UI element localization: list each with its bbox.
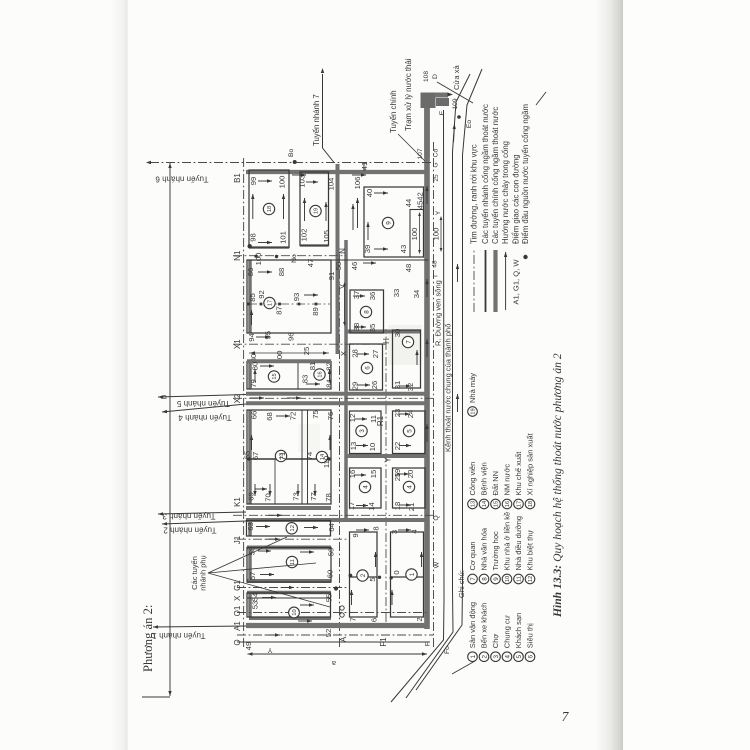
svg-text:Công viên: Công viên	[468, 462, 477, 496]
svg-text:10: 10	[505, 576, 511, 582]
svg-text:Xí nghiệp sản xuất: Xí nghiệp sản xuất	[526, 432, 535, 495]
svg-text:11: 11	[517, 576, 523, 582]
svg-text:34: 34	[412, 289, 421, 298]
svg-text:3: 3	[390, 530, 399, 534]
svg-text:79: 79	[249, 379, 258, 388]
svg-text:No: No	[291, 254, 298, 263]
svg-text:Bo: Bo	[288, 148, 295, 157]
svg-text:Tim đường, ranh rới khu vực: Tim đường, ranh rới khu vực	[470, 144, 479, 244]
svg-text:18: 18	[393, 502, 402, 511]
svg-text:17: 17	[347, 502, 356, 511]
svg-text:22: 22	[393, 442, 402, 451]
svg-text:15: 15	[494, 501, 500, 507]
svg-text:31: 31	[393, 381, 402, 390]
svg-text:103: 103	[298, 175, 307, 188]
svg-text:94: 94	[247, 333, 256, 342]
svg-text:25: 25	[302, 347, 311, 356]
svg-text:84: 84	[325, 379, 334, 388]
svg-text:Trạm xử lý nước thải: Trạm xử lý nước thải	[404, 58, 413, 131]
svg-text:106: 106	[353, 177, 362, 190]
svg-text:78: 78	[324, 493, 333, 502]
svg-text:Ghi chú:: Ghi chú:	[457, 570, 466, 598]
svg-text:Chợ: Chợ	[491, 634, 500, 649]
svg-text:14: 14	[482, 501, 488, 507]
svg-text:67: 67	[251, 452, 260, 461]
svg-text:96: 96	[287, 332, 296, 341]
svg-text:8: 8	[363, 310, 370, 314]
svg-text:15: 15	[272, 373, 278, 379]
svg-text:A1: A1	[233, 621, 242, 631]
svg-text:28: 28	[351, 349, 360, 358]
svg-text:88: 88	[277, 268, 286, 277]
svg-text:100: 100	[432, 228, 441, 241]
svg-text:49: 49	[244, 642, 253, 651]
svg-text:N: N	[338, 248, 347, 254]
svg-text:95: 95	[264, 331, 273, 340]
svg-text:12: 12	[528, 576, 534, 582]
svg-text:70: 70	[264, 493, 273, 502]
svg-text:19: 19	[471, 408, 477, 414]
svg-text:Khu biệt thự: Khu biệt thự	[526, 530, 535, 571]
svg-text:a: a	[331, 659, 336, 668]
svg-text:N1: N1	[233, 250, 242, 261]
svg-text:71: 71	[278, 452, 287, 461]
svg-text:Đất NN: Đất NN	[491, 471, 500, 496]
svg-text:85: 85	[248, 293, 257, 302]
svg-text:Sân vận động: Sân vận động	[468, 602, 477, 648]
svg-text:107: 107	[417, 148, 424, 159]
svg-text:Các tuyến chính cống ngầm thoá: Các tuyến chính cống ngầm thoát nước	[491, 107, 500, 244]
svg-text:8: 8	[372, 526, 381, 530]
svg-text:46: 46	[350, 262, 359, 271]
svg-text:86: 86	[246, 268, 255, 277]
svg-text:27: 27	[371, 350, 380, 359]
svg-text:O: O	[233, 639, 242, 645]
svg-text:74: 74	[305, 451, 314, 460]
svg-text:42: 42	[416, 192, 425, 201]
svg-text:Y: Y	[384, 457, 393, 463]
svg-text:Hướng nước chảy trong cống: Hướng nước chảy trong cống	[501, 141, 510, 244]
svg-text:4: 4	[504, 654, 511, 658]
svg-text:8: 8	[481, 577, 488, 581]
svg-text:X: X	[233, 595, 242, 601]
svg-text:nhánh phụ: nhánh phụ	[199, 555, 208, 590]
svg-text:Co: Co	[433, 148, 440, 157]
svg-text:18: 18	[528, 501, 534, 507]
svg-text:Fo: Fo	[444, 646, 451, 654]
svg-text:W: W	[434, 561, 441, 568]
svg-text:NM nước: NM nước	[503, 464, 512, 496]
svg-text:25: 25	[433, 174, 440, 182]
svg-text:F: F	[425, 642, 432, 646]
svg-text:16: 16	[505, 501, 511, 507]
svg-text:Tuyến nhánh 3: Tuyến nhánh 3	[162, 512, 216, 521]
svg-text:3: 3	[493, 654, 500, 658]
svg-text:75: 75	[311, 410, 320, 419]
svg-text:Q: Q	[433, 515, 440, 520]
svg-text:3: 3	[359, 429, 366, 433]
svg-text:Bến xe khách: Bến xe khách	[480, 603, 489, 648]
svg-text:50: 50	[334, 262, 343, 271]
svg-text:59: 59	[327, 548, 336, 557]
svg-text:Eo: Eo	[466, 120, 473, 129]
svg-text:16: 16	[318, 371, 324, 377]
svg-text:Nhà văn hóa: Nhà văn hóa	[480, 527, 489, 570]
svg-text:H: H	[382, 338, 391, 344]
svg-text:53: 53	[251, 601, 260, 610]
svg-text:91: 91	[327, 272, 336, 281]
svg-text:G: G	[433, 162, 440, 167]
svg-text:101: 101	[279, 231, 288, 244]
svg-text:77: 77	[309, 492, 318, 501]
svg-text:69: 69	[247, 492, 256, 501]
svg-text:7: 7	[470, 577, 477, 581]
svg-text:73: 73	[292, 492, 301, 501]
svg-text:41: 41	[360, 162, 369, 171]
svg-text:21: 21	[407, 503, 416, 512]
svg-text:2: 2	[481, 654, 488, 658]
svg-text:F1: F1	[379, 637, 388, 647]
svg-text:45: 45	[416, 201, 425, 210]
svg-text:7: 7	[349, 617, 358, 621]
svg-text:30: 30	[393, 329, 402, 338]
svg-text:76: 76	[326, 412, 335, 421]
svg-text:48: 48	[432, 260, 439, 268]
svg-text:66: 66	[250, 411, 259, 420]
svg-text:4: 4	[410, 529, 419, 534]
svg-text:10: 10	[292, 609, 298, 615]
svg-text:108: 108	[423, 71, 430, 82]
svg-text:40: 40	[365, 189, 374, 198]
svg-text:Bệnh viện: Bệnh viện	[480, 462, 489, 495]
svg-text:Kênh thoát nước chung của thàn: Kênh thoát nước chung của thành phố	[444, 323, 453, 452]
svg-text:10: 10	[368, 443, 377, 452]
svg-text:54: 54	[251, 592, 260, 601]
svg-text:17: 17	[517, 501, 523, 507]
svg-text:18: 18	[267, 206, 273, 212]
svg-text:E: E	[439, 110, 446, 115]
svg-text:Nhà điều dưỡng: Nhà điều dưỡng	[514, 516, 523, 571]
svg-text:X: X	[339, 351, 348, 356]
svg-text:X1: X1	[233, 339, 242, 349]
svg-text:14: 14	[367, 502, 376, 511]
svg-text:9: 9	[385, 221, 392, 225]
svg-text:9: 9	[493, 577, 500, 581]
svg-text:36: 36	[368, 292, 377, 301]
svg-text:A1, G1, Q, W: A1, G1, Q, W	[512, 259, 521, 305]
svg-text:6: 6	[527, 654, 534, 658]
svg-text:K1: K1	[233, 497, 242, 507]
svg-text:23: 23	[393, 409, 402, 418]
svg-text:Tuyến chính: Tuyến chính	[389, 90, 398, 133]
svg-text:48: 48	[404, 264, 413, 273]
svg-text:37: 37	[352, 291, 361, 300]
svg-text:R. Đường ven sông: R. Đường ven sông	[434, 280, 443, 346]
svg-text:99: 99	[249, 177, 258, 186]
svg-text:52: 52	[324, 629, 333, 638]
svg-text:Tuyến nhánh 2: Tuyến nhánh 2	[163, 526, 217, 535]
svg-text:13: 13	[471, 501, 477, 507]
svg-text:98: 98	[249, 233, 258, 242]
svg-text:57: 57	[248, 572, 257, 581]
svg-text:68: 68	[265, 412, 274, 421]
svg-text:82: 82	[325, 362, 334, 371]
svg-text:0: 0	[392, 570, 401, 574]
svg-text:A: A	[339, 636, 348, 642]
svg-text:J1: J1	[233, 535, 242, 544]
svg-text:81: 81	[308, 362, 317, 371]
svg-text:87: 87	[275, 306, 284, 315]
svg-text:Điểm đầu nguồn nước tuyến cống: Điểm đầu nguồn nước tuyến cống ngầm	[521, 104, 530, 244]
svg-text:Tuyến nhánh 5: Tuyến nhánh 5	[176, 399, 230, 408]
svg-text:7: 7	[562, 709, 570, 724]
svg-text:5: 5	[368, 577, 377, 581]
svg-text:T: T	[433, 274, 440, 278]
svg-text:63: 63	[246, 522, 255, 531]
svg-text:29: 29	[351, 382, 360, 391]
svg-text:26: 26	[370, 381, 379, 390]
svg-text:4: 4	[406, 485, 413, 489]
svg-text:6: 6	[364, 366, 371, 370]
svg-text:Cơ quan: Cơ quan	[468, 541, 477, 570]
svg-text:2: 2	[415, 617, 424, 621]
svg-text:Y: Y	[435, 210, 442, 215]
svg-text:1: 1	[470, 654, 477, 658]
svg-text:Trường học: Trường học	[491, 531, 500, 571]
svg-text:100: 100	[254, 253, 263, 266]
svg-text:19: 19	[314, 208, 320, 214]
svg-text:105: 105	[322, 230, 331, 243]
svg-text:39: 39	[363, 245, 372, 254]
svg-text:Chung cư: Chung cư	[503, 615, 512, 648]
svg-text:5: 5	[516, 654, 523, 658]
svg-text:Cửa xả: Cửa xả	[452, 65, 461, 90]
svg-text:104: 104	[327, 177, 336, 191]
svg-text:Siêu thị: Siêu thị	[526, 623, 535, 648]
svg-text:Tuyến nhánh 7: Tuyến nhánh 7	[312, 94, 321, 146]
svg-text:35: 35	[368, 324, 377, 333]
svg-text:Tuyến nhánh 1: Tuyến nhánh 1	[152, 631, 206, 640]
svg-text:12: 12	[290, 525, 296, 531]
svg-text:11: 11	[290, 559, 296, 565]
svg-text:17: 17	[268, 300, 274, 306]
svg-text:13: 13	[349, 442, 358, 451]
svg-text:9: 9	[351, 533, 360, 537]
svg-text:55: 55	[325, 594, 334, 603]
svg-text:Điểm giao các con đường: Điểm giao các con đường	[512, 154, 521, 244]
svg-text:5: 5	[406, 429, 413, 433]
svg-text:2: 2	[360, 573, 367, 577]
svg-text:43: 43	[399, 245, 408, 254]
svg-text:16: 16	[348, 470, 357, 479]
svg-text:64: 64	[327, 523, 336, 532]
svg-text:83: 83	[301, 375, 310, 384]
svg-text:Khu chế xuất: Khu chế xuất	[514, 451, 523, 496]
svg-text:O1: O1	[233, 605, 242, 616]
svg-text:1: 1	[409, 572, 416, 576]
svg-text:Khách sạn: Khách sạn	[514, 613, 523, 648]
svg-text:109: 109	[452, 98, 459, 109]
svg-text:Hình 13.3: Quy hoạch hệ thống: Hình 13.3: Quy hoạch hệ thống thoát nước…	[551, 353, 564, 618]
svg-text:80: 80	[251, 362, 260, 371]
svg-text:89: 89	[311, 307, 320, 316]
svg-text:33: 33	[392, 289, 401, 298]
svg-text:100: 100	[278, 176, 287, 189]
svg-text:47: 47	[306, 259, 315, 268]
svg-text:X2: X2	[233, 393, 242, 403]
svg-text:93: 93	[292, 293, 301, 302]
svg-text:12: 12	[348, 414, 357, 423]
svg-text:B1: B1	[233, 173, 242, 183]
svg-text:100: 100	[410, 228, 419, 241]
svg-text:92: 92	[257, 290, 266, 299]
svg-text:102: 102	[300, 229, 309, 242]
svg-text:6: 6	[370, 618, 379, 622]
svg-text:7: 7	[405, 340, 412, 344]
svg-text:44: 44	[404, 198, 413, 207]
svg-text:Tuyến nhánh 6: Tuyến nhánh 6	[155, 175, 209, 184]
svg-text:Khu nhà ở liền kề: Khu nhà ở liền kề	[503, 512, 512, 571]
svg-text:4: 4	[362, 485, 369, 489]
svg-text:Y: Y	[267, 646, 272, 655]
svg-text:15: 15	[369, 470, 378, 479]
svg-text:60: 60	[326, 570, 335, 579]
svg-text:Nhà máy: Nhà máy	[468, 373, 477, 403]
svg-text:11: 11	[369, 415, 378, 423]
svg-text:D: D	[432, 74, 439, 79]
svg-text:110: 110	[322, 456, 331, 468]
svg-text:Các tuyến nhánh cống ngầm thoá: Các tuyến nhánh cống ngầm thoát nước	[481, 104, 490, 244]
svg-text:Tuyến nhánh 4: Tuyến nhánh 4	[178, 413, 232, 422]
